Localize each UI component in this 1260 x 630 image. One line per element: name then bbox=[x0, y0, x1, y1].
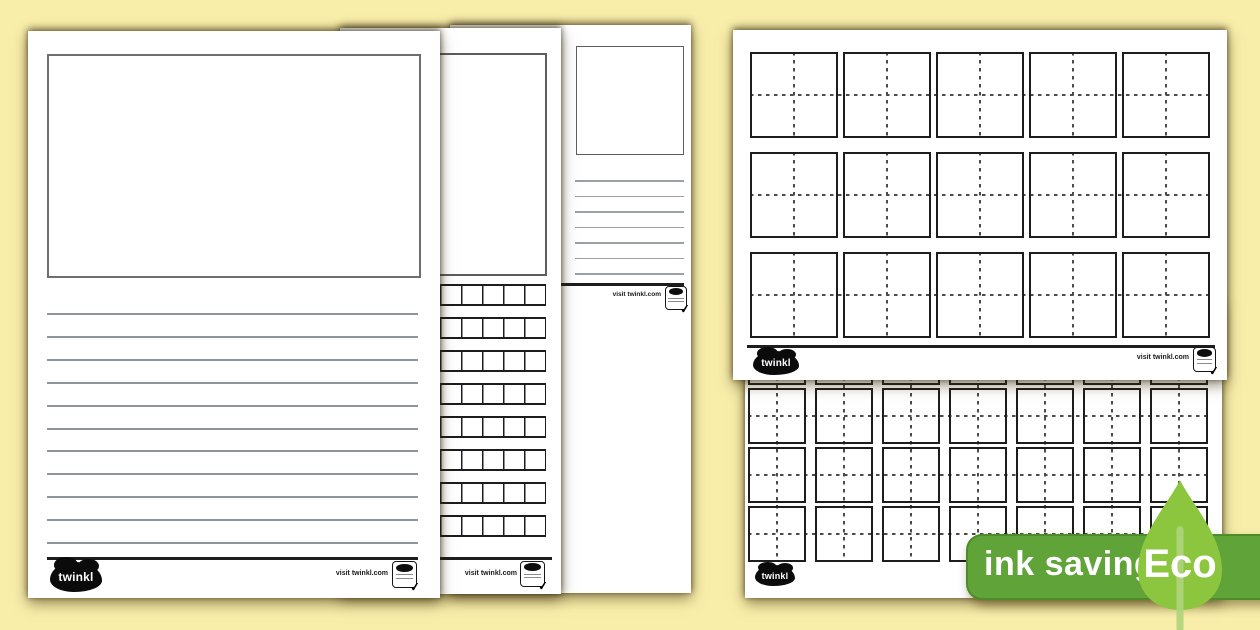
handwriting-square bbox=[1122, 252, 1210, 338]
handwriting-square bbox=[750, 152, 838, 238]
handwriting-square bbox=[1029, 52, 1117, 138]
handwriting-square bbox=[1122, 52, 1210, 138]
visit-twinkl-link: visit twinkl.com bbox=[465, 570, 517, 577]
twinkl-quality-badge: ✓ bbox=[1193, 347, 1216, 372]
handwriting-square bbox=[750, 252, 838, 338]
badge-cloud-icon bbox=[1197, 349, 1212, 356]
writing-line bbox=[575, 242, 684, 244]
writing-line bbox=[47, 519, 418, 521]
badge-cloud-icon bbox=[396, 564, 413, 572]
twinkl-logo: twinkl bbox=[50, 562, 102, 592]
handwriting-square bbox=[843, 52, 931, 138]
badge-cloud-icon bbox=[669, 288, 683, 295]
handwriting-square bbox=[936, 252, 1024, 338]
twinkl-logo-text: twinkl bbox=[762, 571, 789, 581]
picture-box bbox=[576, 46, 684, 155]
twinkl-logo-text: twinkl bbox=[761, 358, 791, 369]
handwriting-box bbox=[748, 388, 806, 444]
writing-line bbox=[47, 450, 418, 452]
check-icon: ✓ bbox=[537, 580, 548, 593]
writing-line bbox=[575, 227, 684, 229]
writing-line bbox=[47, 473, 418, 475]
writing-line bbox=[575, 196, 684, 198]
page-front-left-worksheet: twinkl visit twinkl.com ✓ bbox=[28, 31, 440, 598]
badge-text-line bbox=[396, 574, 413, 575]
badge-text-line bbox=[1197, 359, 1213, 360]
writing-line bbox=[47, 542, 418, 544]
handwriting-box bbox=[748, 447, 806, 503]
picture-box bbox=[47, 54, 421, 278]
writing-line bbox=[575, 211, 684, 213]
check-icon: ✓ bbox=[679, 303, 690, 316]
twinkl-logo-text: twinkl bbox=[58, 570, 93, 584]
writing-line bbox=[47, 359, 418, 361]
twinkl-quality-badge: ✓ bbox=[520, 561, 545, 587]
twinkl-logo: twinkl bbox=[753, 351, 799, 375]
twinkl-logo: twinkl bbox=[755, 565, 795, 586]
writing-line bbox=[47, 405, 418, 407]
handwriting-box bbox=[748, 506, 806, 562]
writing-line bbox=[47, 313, 418, 315]
handwriting-square bbox=[1029, 252, 1117, 338]
badge-cloud-icon bbox=[524, 563, 541, 571]
handwriting-box bbox=[882, 447, 940, 503]
badge-text-line bbox=[396, 578, 413, 579]
writing-line bbox=[47, 382, 418, 384]
check-icon: ✓ bbox=[1208, 365, 1219, 378]
twinkl-quality-badge: ✓ bbox=[392, 561, 417, 588]
badge-text-line bbox=[524, 577, 541, 578]
handwriting-square bbox=[843, 152, 931, 238]
eco-label: Eco bbox=[1128, 542, 1232, 587]
visit-twinkl-link: visit twinkl.com bbox=[336, 570, 388, 577]
handwriting-box bbox=[1016, 447, 1074, 503]
handwriting-box bbox=[949, 388, 1007, 444]
handwriting-square bbox=[936, 52, 1024, 138]
page-top-right-worksheet: twinkl visit twinkl.com ✓ bbox=[733, 30, 1227, 380]
picture-box bbox=[433, 53, 547, 276]
check-icon: ✓ bbox=[409, 581, 420, 594]
writing-line bbox=[47, 496, 418, 498]
handwriting-box bbox=[815, 506, 873, 562]
handwriting-box bbox=[815, 388, 873, 444]
handwriting-square bbox=[1122, 152, 1210, 238]
writing-line bbox=[575, 180, 684, 182]
handwriting-square bbox=[843, 252, 931, 338]
footer-rule bbox=[747, 345, 1215, 348]
handwriting-box bbox=[815, 447, 873, 503]
badge-text-line bbox=[668, 298, 683, 299]
handwriting-box bbox=[882, 506, 940, 562]
writing-line bbox=[575, 258, 684, 260]
handwriting-square bbox=[1029, 152, 1117, 238]
writing-line bbox=[575, 273, 684, 275]
footer-rule bbox=[47, 557, 418, 560]
twinkl-quality-badge: ✓ bbox=[665, 286, 687, 310]
handwriting-box bbox=[1150, 388, 1208, 444]
visit-twinkl-link: visit twinkl.com bbox=[1137, 354, 1189, 361]
handwriting-square bbox=[936, 152, 1024, 238]
worksheet-preview-canvas: visit twinkl.com ✓ visit twinkl.com ✓ tw… bbox=[0, 0, 1260, 630]
handwriting-box bbox=[949, 447, 1007, 503]
handwriting-square bbox=[750, 52, 838, 138]
eco-leaf-badge: Eco bbox=[1128, 478, 1232, 630]
handwriting-box bbox=[1016, 388, 1074, 444]
badge-text-line bbox=[524, 574, 541, 575]
handwriting-box bbox=[882, 388, 940, 444]
handwriting-box bbox=[1083, 388, 1141, 444]
writing-line bbox=[47, 428, 418, 430]
visit-twinkl-link: visit twinkl.com bbox=[613, 291, 661, 298]
writing-line bbox=[47, 336, 418, 338]
